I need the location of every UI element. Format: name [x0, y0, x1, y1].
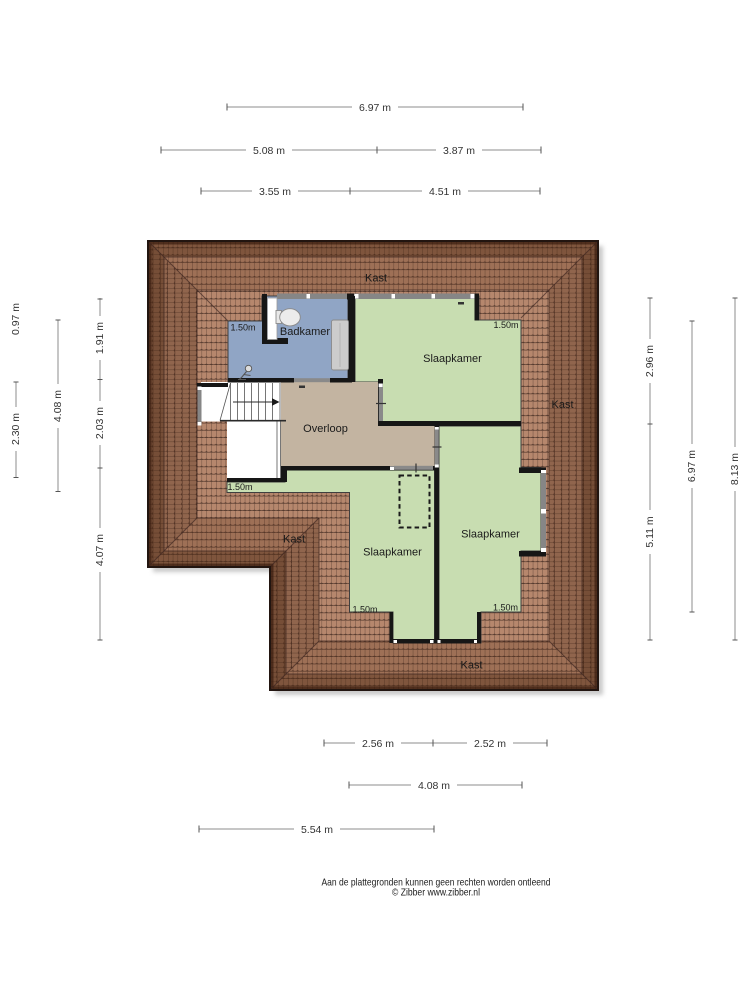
svg-text:0.97 m: 0.97 m — [10, 303, 22, 335]
svg-text:1.50m: 1.50m — [352, 605, 377, 615]
svg-text:2.30 m: 2.30 m — [10, 413, 22, 445]
svg-text:4.08 m: 4.08 m — [418, 780, 450, 792]
svg-text:6.97 m: 6.97 m — [359, 102, 391, 114]
svg-text:1.91 m: 1.91 m — [94, 322, 106, 354]
svg-text:2.96 m: 2.96 m — [644, 345, 656, 377]
svg-text:5.11 m: 5.11 m — [644, 516, 656, 548]
svg-text:1.50m: 1.50m — [227, 482, 252, 492]
svg-text:1.50m: 1.50m — [493, 603, 518, 613]
svg-text:Kast: Kast — [365, 273, 387, 285]
svg-text:Kast: Kast — [283, 534, 305, 546]
svg-text:Badkamer: Badkamer — [280, 326, 330, 338]
svg-text:3.87 m: 3.87 m — [443, 145, 475, 157]
svg-text:2.52 m: 2.52 m — [474, 738, 506, 750]
svg-text:Slaapkamer: Slaapkamer — [363, 547, 422, 559]
svg-text:8.13 m: 8.13 m — [729, 453, 741, 485]
svg-text:2.56 m: 2.56 m — [362, 738, 394, 750]
svg-text:5.08 m: 5.08 m — [253, 145, 285, 157]
svg-text:6.97 m: 6.97 m — [686, 450, 698, 482]
svg-text:2.03 m: 2.03 m — [94, 407, 106, 439]
svg-text:Kast: Kast — [460, 660, 482, 672]
svg-text:4.08 m: 4.08 m — [52, 390, 64, 422]
svg-text:5.54 m: 5.54 m — [301, 824, 333, 836]
svg-text:1.50m: 1.50m — [230, 323, 255, 333]
svg-text:Slaapkamer: Slaapkamer — [461, 529, 520, 541]
svg-text:4.51 m: 4.51 m — [429, 186, 461, 198]
svg-text:Slaapkamer: Slaapkamer — [423, 353, 482, 365]
svg-text:Overloop: Overloop — [303, 423, 348, 435]
svg-text:4.07 m: 4.07 m — [94, 534, 106, 566]
svg-text:Kast: Kast — [551, 399, 573, 411]
svg-text:3.55 m: 3.55 m — [259, 186, 291, 198]
svg-text:1.50m: 1.50m — [493, 320, 518, 330]
svg-text:© Zibber www.zibber.nl: © Zibber www.zibber.nl — [392, 887, 480, 899]
